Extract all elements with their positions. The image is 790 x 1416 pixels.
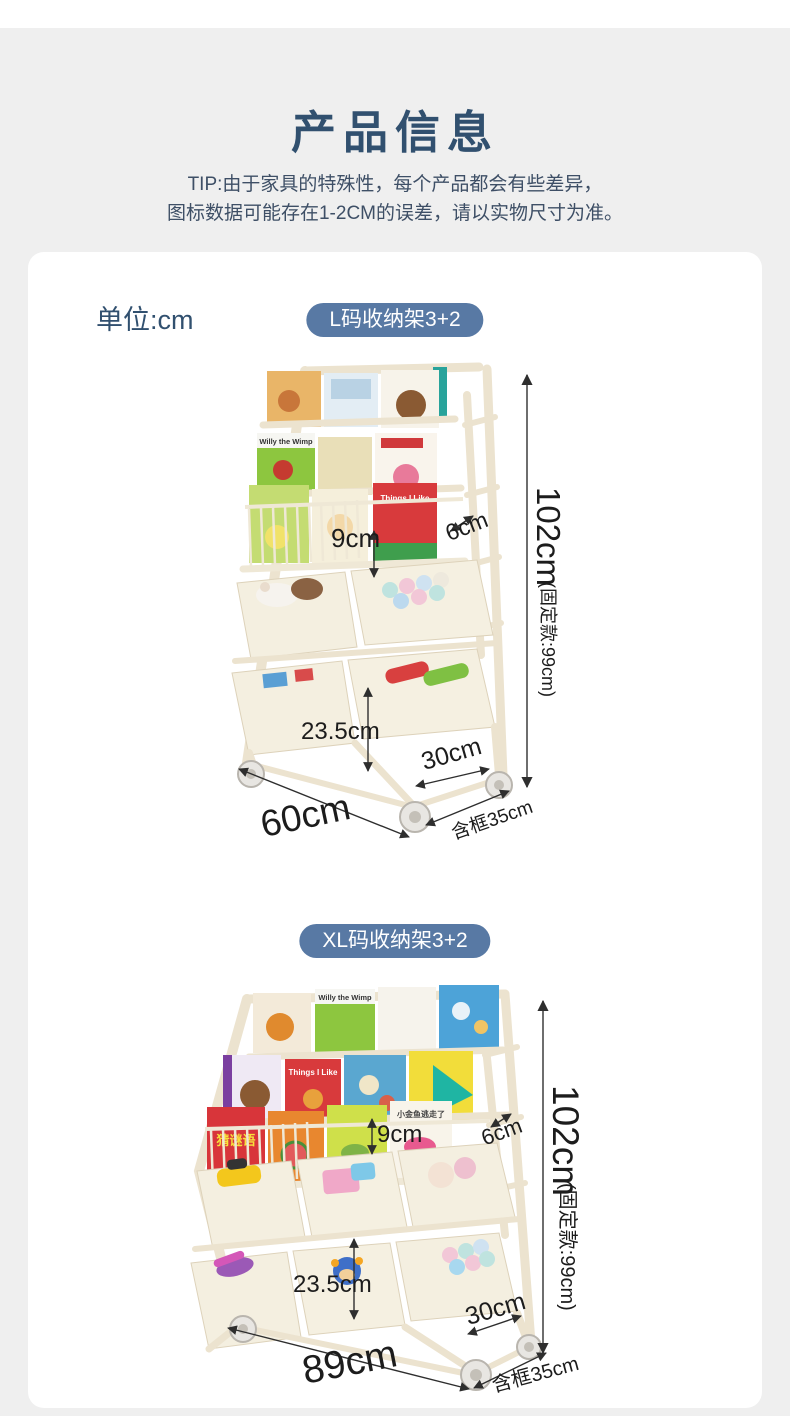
xl-rack-figure: Willy the Wimp Things I Like xyxy=(165,975,585,1410)
tip-line-2: 图标数据可能存在1-2CM的误差，请以实物尺寸为准。 xyxy=(0,199,790,228)
xl-book-title-fish: 小金鱼逃走了 xyxy=(396,1109,445,1119)
tip-text: TIP:由于家具的特殊性，每个产品都会有些差异， 图标数据可能存在1-2CM的误… xyxy=(0,170,790,228)
l-rack-illustration: Willy the Wimp Things I Like xyxy=(205,355,575,850)
xl-book-title-willy: Willy the Wimp xyxy=(318,993,372,1002)
l-dim-pocket-depth: 9cm xyxy=(331,525,380,551)
xl-dim-height-note: (固定款:99cm) xyxy=(557,1183,577,1311)
size-l-badge: L码收纳架3+2 xyxy=(306,303,483,337)
l-book-title-willy: Willy the Wimp xyxy=(259,437,313,446)
l-rack-figure: Willy the Wimp Things I Like xyxy=(205,355,575,850)
product-info-page: 产品信息 TIP:由于家具的特殊性，每个产品都会有些差异， 图标数据可能存在1-… xyxy=(0,0,790,1416)
tip-line-1: TIP:由于家具的特殊性，每个产品都会有些差异， xyxy=(0,170,790,199)
top-white-strip xyxy=(0,0,790,28)
l-dim-height-note: (固定款:99cm) xyxy=(539,582,557,697)
xl-dim-pocket-depth: 9cm xyxy=(377,1123,422,1147)
size-xl-badge: XL码收纳架3+2 xyxy=(299,924,490,958)
unit-label: 单位:cm xyxy=(96,298,194,337)
l-book-row-1 xyxy=(263,367,455,428)
xl-dim-bin-height: 23.5cm xyxy=(293,1273,372,1297)
xl-book-title-things: Things I Like xyxy=(289,1068,338,1077)
xl-dim-height: 102cm xyxy=(547,1085,584,1196)
l-dim-height: 102cm xyxy=(532,487,565,586)
l-dim-bin-height: 23.5cm xyxy=(301,720,380,744)
page-title: 产品信息 xyxy=(0,96,790,161)
xl-bin-row-1 xyxy=(195,1143,519,1249)
